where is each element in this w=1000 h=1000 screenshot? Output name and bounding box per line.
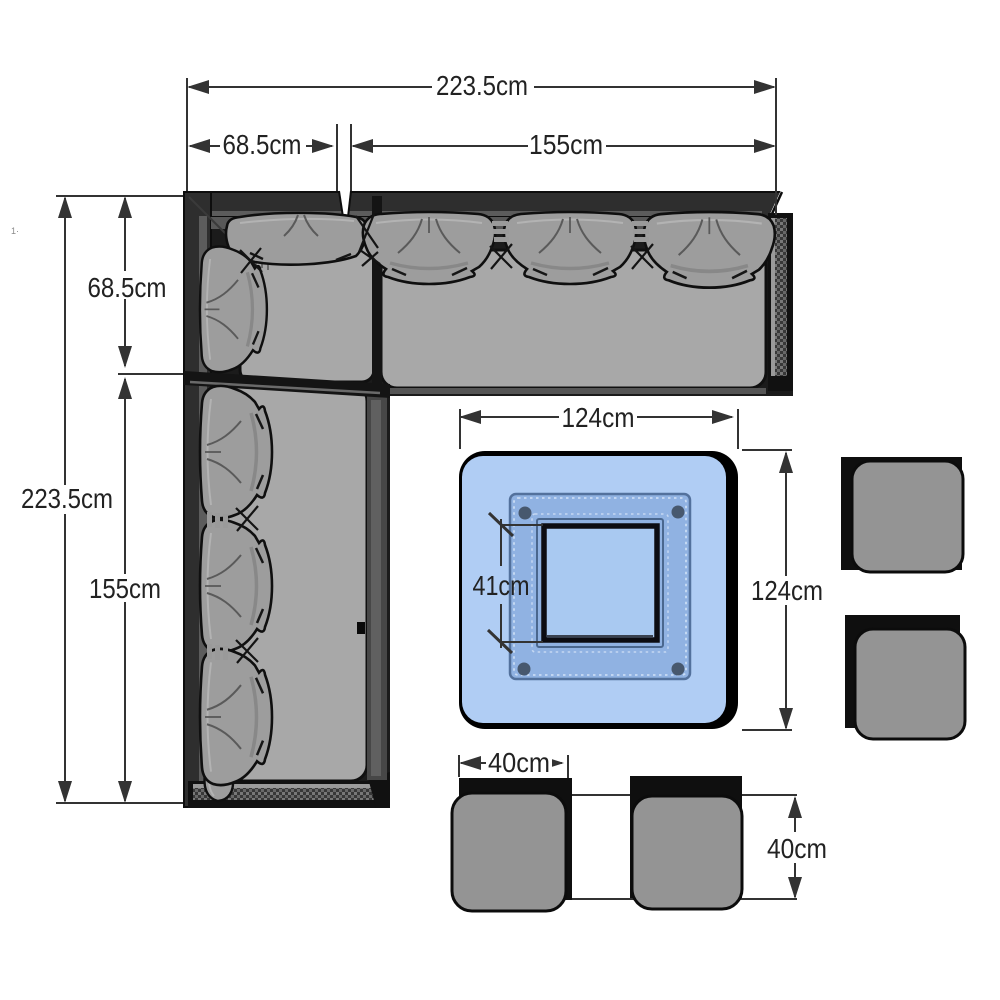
svg-text:40cm: 40cm xyxy=(767,833,827,864)
svg-text:155cm: 155cm xyxy=(529,129,603,160)
svg-text:223.5cm: 223.5cm xyxy=(21,483,113,514)
svg-text:124cm: 124cm xyxy=(562,402,635,433)
svg-text:1·: 1· xyxy=(11,226,19,236)
svg-text:223.5cm: 223.5cm xyxy=(436,70,528,101)
svg-text:68.5cm: 68.5cm xyxy=(223,129,302,160)
svg-text:155cm: 155cm xyxy=(89,573,161,604)
svg-text:68.5cm: 68.5cm xyxy=(88,272,167,303)
svg-text:40cm: 40cm xyxy=(488,747,550,778)
svg-text:124cm: 124cm xyxy=(751,575,823,606)
svg-text:41cm: 41cm xyxy=(473,570,530,601)
